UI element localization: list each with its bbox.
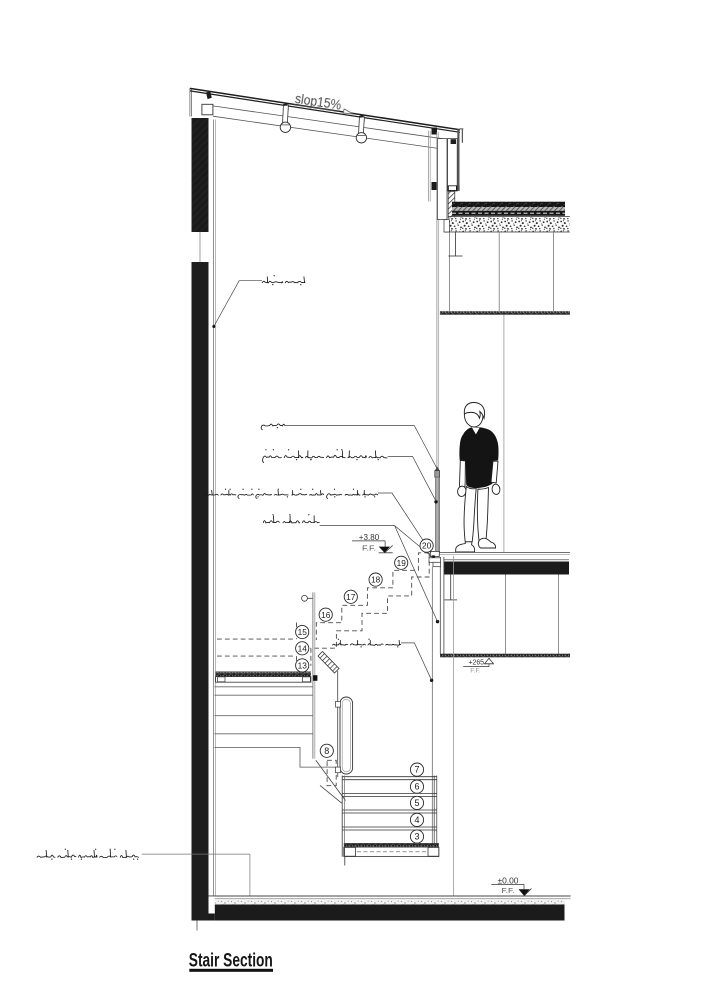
svg-text:17: 17 xyxy=(346,592,356,602)
svg-text:F.F.: F.F. xyxy=(362,543,376,552)
svg-text:Stair Section: Stair Section xyxy=(189,950,273,972)
svg-text:3: 3 xyxy=(414,832,419,842)
svg-text:18: 18 xyxy=(371,575,381,585)
svg-text:8: 8 xyxy=(324,746,329,756)
svg-text:13: 13 xyxy=(298,661,308,671)
svg-text:6: 6 xyxy=(414,782,419,792)
svg-text:5: 5 xyxy=(414,798,419,808)
svg-text:+3.80: +3.80 xyxy=(359,533,380,542)
svg-text:F.F.: F.F. xyxy=(502,886,515,895)
svg-text:19: 19 xyxy=(397,558,407,568)
svg-text:4: 4 xyxy=(414,815,419,825)
svg-text:15: 15 xyxy=(298,627,308,637)
svg-text:±0.00: ±0.00 xyxy=(498,876,520,885)
svg-text:7: 7 xyxy=(414,765,419,775)
svg-text:F.F.: F.F. xyxy=(470,667,481,674)
svg-text:20: 20 xyxy=(422,541,432,551)
svg-text:+265: +265 xyxy=(469,658,485,667)
svg-text:16: 16 xyxy=(321,610,331,620)
svg-text:14: 14 xyxy=(298,643,308,653)
